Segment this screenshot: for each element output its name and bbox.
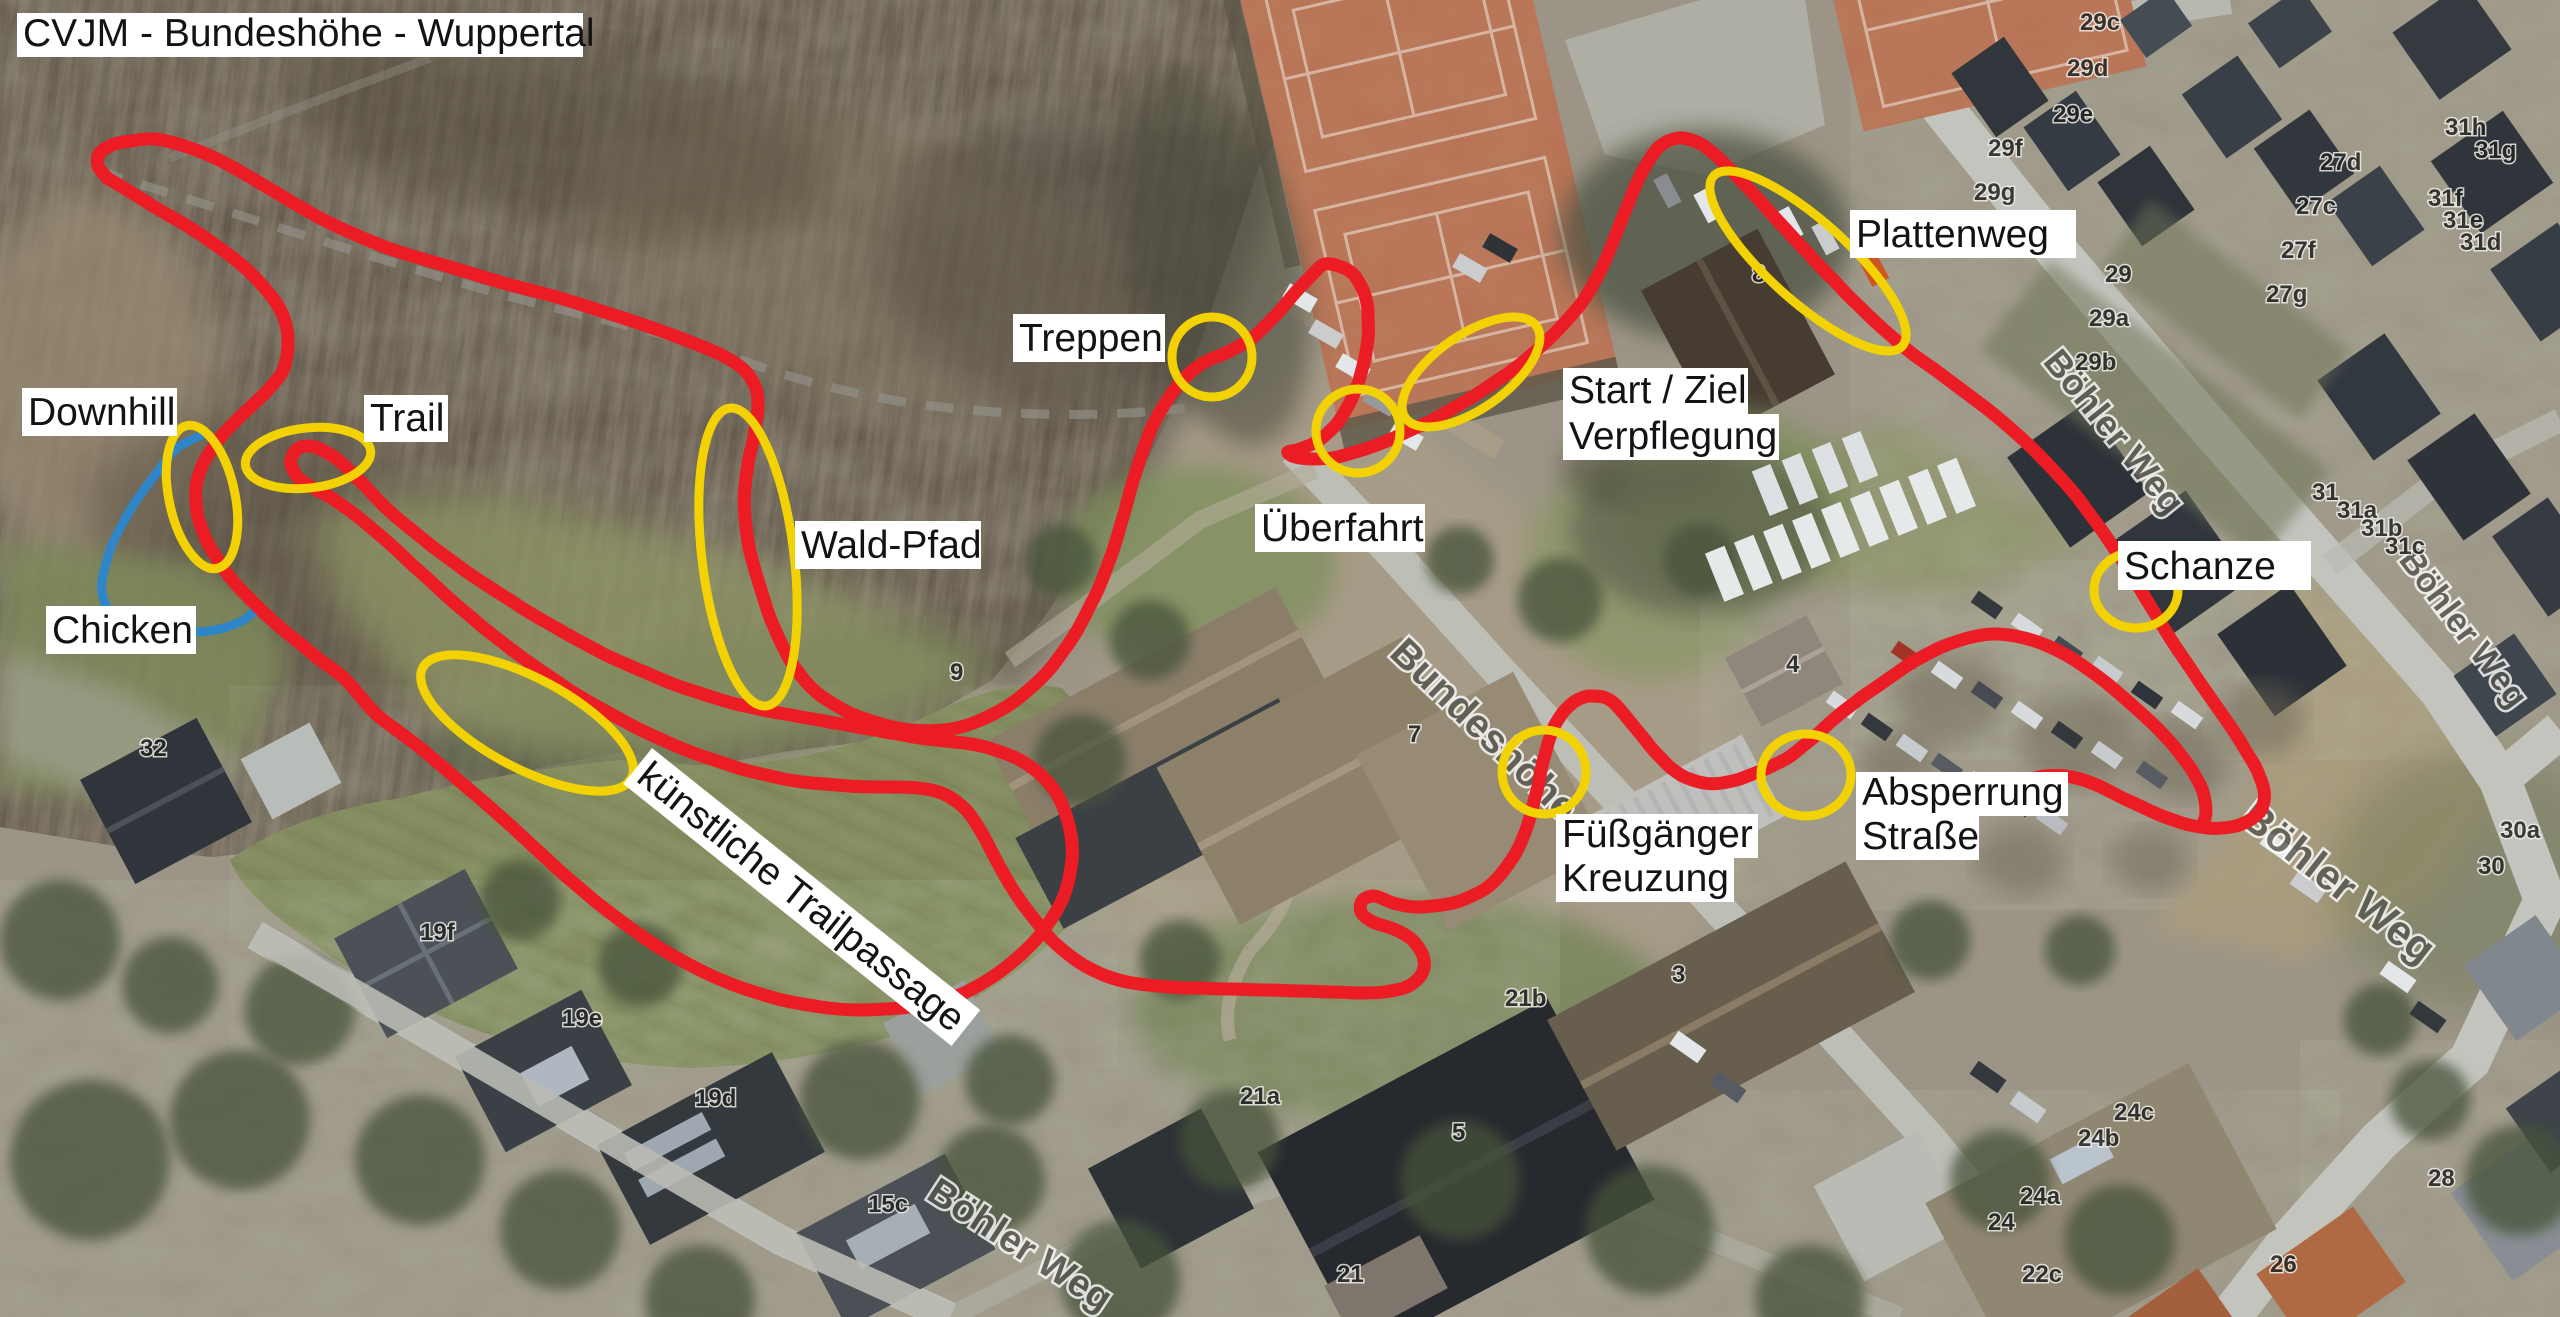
svg-text:21b: 21b — [1505, 985, 1546, 1012]
svg-text:19f: 19f — [420, 919, 456, 946]
svg-text:27c: 27c — [2296, 193, 2336, 220]
svg-text:CVJM - Bundeshöhe - Wuppertal: CVJM - Bundeshöhe - Wuppertal — [23, 12, 595, 55]
svg-text:31: 31 — [2312, 479, 2339, 506]
svg-text:Wald-Pfad: Wald-Pfad — [801, 524, 982, 567]
svg-text:32: 32 — [140, 735, 167, 762]
svg-text:29e: 29e — [2053, 101, 2093, 128]
svg-text:5: 5 — [1452, 1119, 1465, 1146]
svg-text:4: 4 — [1786, 651, 1800, 678]
svg-text:30: 30 — [2478, 853, 2505, 880]
svg-text:29f: 29f — [1988, 135, 2024, 162]
svg-text:Füßgänger: Füßgänger — [1562, 813, 1753, 856]
svg-text:24a: 24a — [2020, 1183, 2061, 1210]
svg-text:Plattenweg: Plattenweg — [1856, 213, 2049, 256]
svg-text:29: 29 — [2105, 261, 2132, 288]
svg-text:31c: 31c — [2385, 533, 2425, 560]
svg-text:Absperrung: Absperrung — [1862, 771, 2064, 814]
svg-text:31g: 31g — [2475, 137, 2516, 164]
svg-text:9: 9 — [950, 659, 963, 686]
svg-text:31d: 31d — [2460, 229, 2501, 256]
svg-text:22c: 22c — [2022, 1261, 2062, 1288]
svg-text:Überfahrt: Überfahrt — [1261, 507, 1424, 550]
svg-text:24c: 24c — [2114, 1099, 2154, 1126]
svg-text:19e: 19e — [562, 1005, 602, 1032]
svg-text:21a: 21a — [1240, 1083, 1281, 1110]
svg-text:Start / Ziel: Start / Ziel — [1569, 369, 1747, 412]
svg-text:Kreuzung: Kreuzung — [1562, 857, 1729, 900]
svg-text:29a: 29a — [2089, 305, 2130, 332]
svg-text:19d: 19d — [695, 1085, 736, 1112]
svg-text:Schanze: Schanze — [2124, 545, 2276, 588]
svg-text:Trail: Trail — [370, 397, 444, 440]
svg-text:29d: 29d — [2067, 55, 2108, 82]
svg-text:27d: 27d — [2320, 149, 2361, 176]
svg-text:Chicken: Chicken — [52, 609, 193, 652]
svg-text:30a: 30a — [2500, 817, 2541, 844]
svg-text:27g: 27g — [2266, 281, 2307, 308]
svg-text:3: 3 — [1672, 961, 1685, 988]
svg-text:15c: 15c — [868, 1191, 908, 1218]
svg-text:24b: 24b — [2078, 1125, 2119, 1152]
svg-text:Verpflegung: Verpflegung — [1569, 415, 1777, 458]
svg-text:28: 28 — [2428, 1165, 2455, 1192]
svg-text:Treppen: Treppen — [1019, 317, 1163, 360]
svg-text:29c: 29c — [2080, 9, 2120, 36]
svg-text:26: 26 — [2270, 1251, 2297, 1278]
svg-text:Downhill: Downhill — [28, 391, 175, 434]
svg-text:24: 24 — [1988, 1209, 2015, 1236]
svg-text:Straße: Straße — [1862, 815, 1979, 858]
svg-text:21: 21 — [1337, 1261, 1364, 1288]
svg-text:29b: 29b — [2075, 349, 2116, 376]
svg-text:27f: 27f — [2281, 237, 2317, 264]
svg-text:7: 7 — [1408, 721, 1421, 748]
svg-text:29g: 29g — [1974, 179, 2015, 206]
